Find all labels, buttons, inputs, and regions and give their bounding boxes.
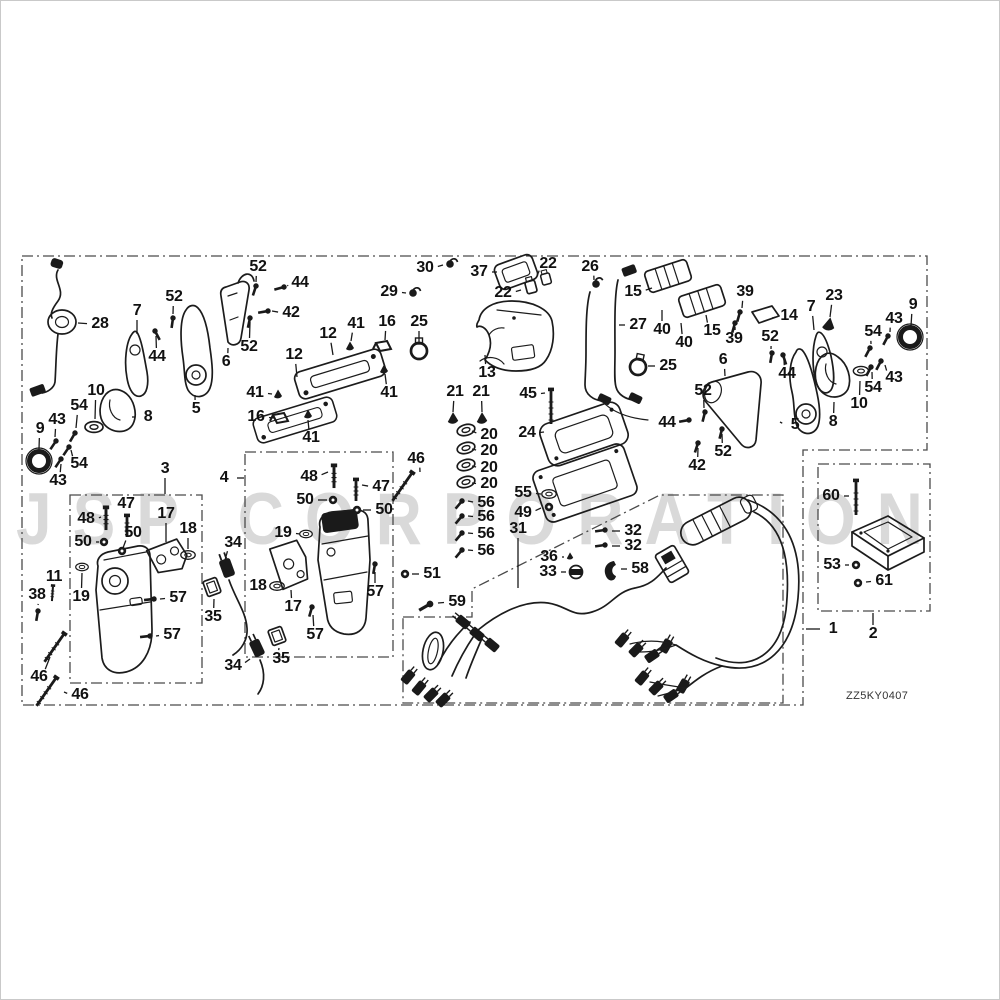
control-unit-box3-drawing — [76, 538, 196, 673]
diagram-code: ZZ5KY0407 — [846, 690, 908, 702]
brackets-14-15 — [644, 259, 779, 323]
lanyard-cable-28-drawing — [29, 257, 76, 397]
left-lever-parts — [26, 274, 254, 474]
wire-harness-31-drawing — [400, 490, 799, 708]
top-cover-13-drawing — [477, 253, 554, 371]
assembly-box-3 — [70, 495, 202, 683]
parts-diagram-page: JSP CORPORATION — [0, 0, 1000, 1000]
control-unit-box4-drawing — [269, 509, 370, 635]
assembly-box-31 — [403, 495, 783, 703]
mount-plates-12 — [252, 347, 387, 444]
assembly-box-2 — [818, 464, 930, 611]
spacer-frame-2-drawing — [852, 516, 924, 570]
cables-26-27 — [585, 264, 648, 420]
fasteners-and-small-parts — [34, 259, 892, 708]
parts-illustration — [0, 0, 1000, 1000]
